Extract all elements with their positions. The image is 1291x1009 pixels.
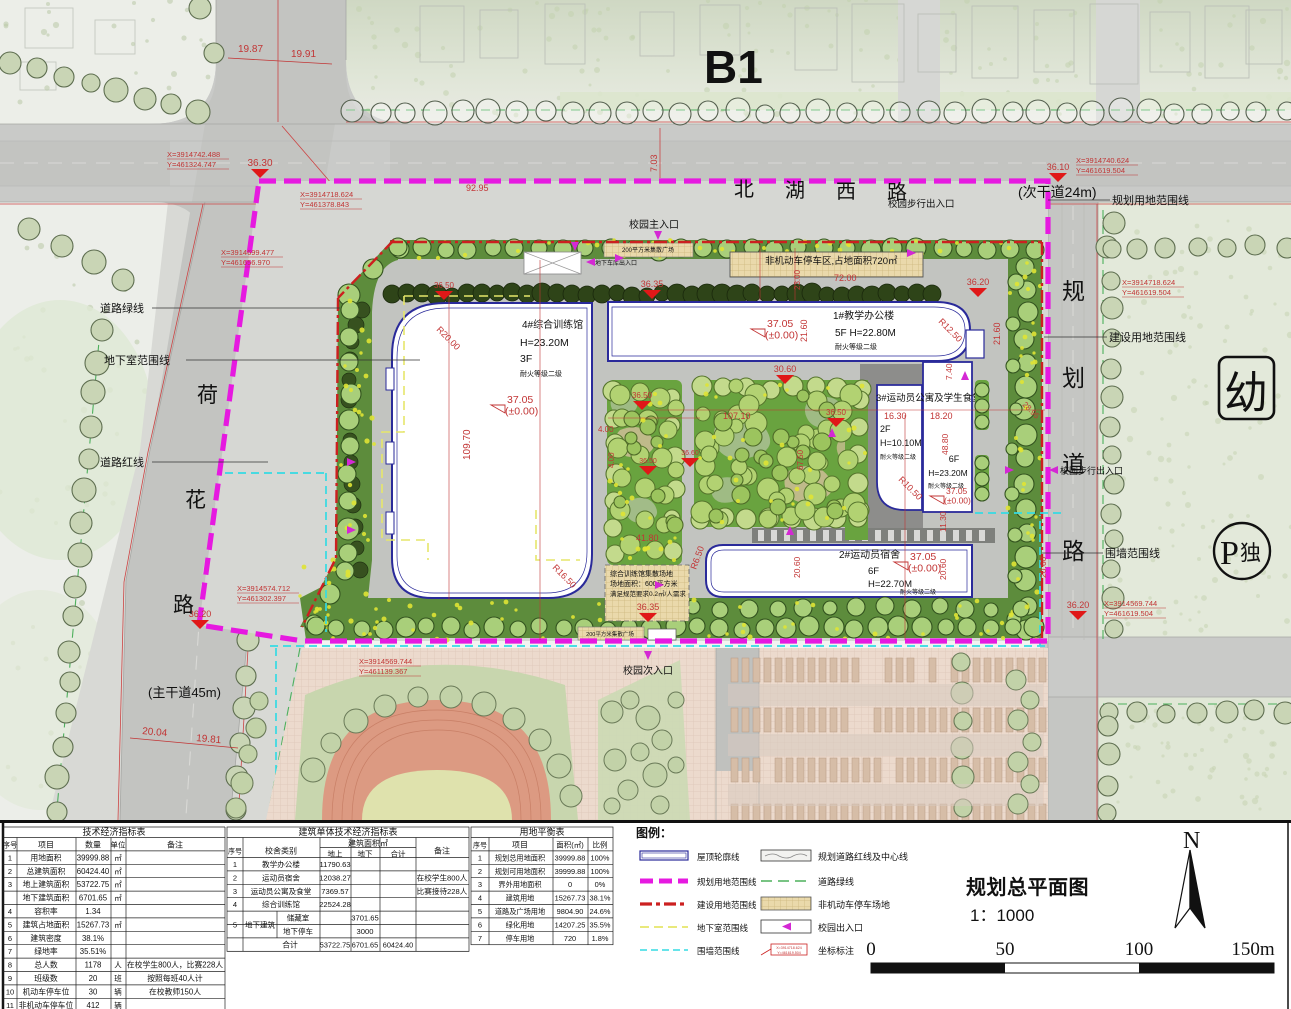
svg-text:X=3914699.477: X=3914699.477 <box>221 248 274 257</box>
svg-text:100%: 100% <box>591 853 610 862</box>
svg-text:92.95: 92.95 <box>466 183 489 193</box>
svg-text:规划总平面图: 规划总平面图 <box>966 875 1089 899</box>
svg-text:校园次入口: 校园次入口 <box>623 664 673 677</box>
svg-text:1.8%: 1.8% <box>592 934 609 943</box>
svg-text:3F: 3F <box>520 353 532 365</box>
svg-text:1.34: 1.34 <box>85 907 101 916</box>
svg-text:36.30: 36.30 <box>247 158 272 169</box>
svg-text:6701.65: 6701.65 <box>352 940 378 949</box>
svg-text:3: 3 <box>478 880 482 889</box>
svg-text:校园出入口: 校园出入口 <box>818 922 863 933</box>
svg-text:3000: 3000 <box>357 927 374 936</box>
svg-text:39999.88: 39999.88 <box>77 853 110 862</box>
svg-text:20.60: 20.60 <box>792 556 802 578</box>
svg-text:地下建筑面积: 地下建筑面积 <box>23 893 70 903</box>
svg-text:X=3914742.488: X=3914742.488 <box>167 150 220 159</box>
svg-text:储藏室: 储藏室 <box>287 913 310 923</box>
svg-text:道路红线: 道路红线 <box>100 455 144 469</box>
svg-text:序号: 序号 <box>473 841 487 850</box>
svg-text:(次干道24m): (次干道24m) <box>1018 184 1097 200</box>
svg-text:2#运动员宿舍: 2#运动员宿舍 <box>839 548 900 561</box>
svg-text:5: 5 <box>478 907 482 916</box>
svg-text:22524.28: 22524.28 <box>319 900 351 909</box>
svg-text:19.91: 19.91 <box>291 49 316 60</box>
svg-text:36.50: 36.50 <box>826 408 847 417</box>
svg-text:Y=461378.843: Y=461378.843 <box>300 200 349 209</box>
svg-text:路: 路 <box>173 594 194 617</box>
svg-text:路: 路 <box>1062 538 1085 564</box>
svg-text:耐火等级二级: 耐火等级二级 <box>835 342 877 351</box>
svg-text:4#综合训练馆: 4#综合训练馆 <box>522 318 583 331</box>
svg-text:北: 北 <box>734 178 754 201</box>
svg-text:35.51%: 35.51% <box>80 947 107 956</box>
svg-text:4.00: 4.00 <box>607 452 616 468</box>
svg-text:道路及广场用地: 道路及广场用地 <box>495 907 545 916</box>
svg-text:机动车停车位: 机动车停车位 <box>23 986 70 996</box>
svg-text:B1: B1 <box>704 41 763 93</box>
svg-text:建设用地范围线: 建设用地范围线 <box>1109 330 1186 344</box>
svg-text:比赛接待228人: 比赛接待228人 <box>417 886 468 896</box>
svg-text:11.30: 11.30 <box>938 511 948 532</box>
svg-text:校园步行出入口: 校园步行出入口 <box>1060 465 1123 476</box>
svg-text:16.30: 16.30 <box>884 411 907 421</box>
svg-text:规划用地范围线: 规划用地范围线 <box>697 877 757 887</box>
svg-text:109.70: 109.70 <box>462 429 473 460</box>
svg-text:50: 50 <box>996 939 1015 960</box>
svg-text:67.50: 67.50 <box>796 449 805 470</box>
svg-text:0: 0 <box>866 939 876 960</box>
svg-text:37.05: 37.05 <box>946 486 968 496</box>
svg-text:53722.75: 53722.75 <box>77 880 110 889</box>
svg-text:项目: 项目 <box>38 841 54 850</box>
svg-text:100: 100 <box>1125 939 1154 960</box>
svg-text:7369.57: 7369.57 <box>321 887 348 896</box>
svg-text:按照每班40人计: 按照每班40人计 <box>147 973 203 983</box>
svg-text:107.10: 107.10 <box>723 411 751 421</box>
svg-text:36.60: 36.60 <box>681 450 699 457</box>
svg-text:2F: 2F <box>880 424 891 434</box>
svg-text:建筑密度: 建筑密度 <box>30 933 61 943</box>
svg-text:序号: 序号 <box>3 840 18 850</box>
svg-text:绿地率: 绿地率 <box>34 946 58 956</box>
svg-text:18.20: 18.20 <box>930 411 953 421</box>
svg-text:N: N <box>1183 828 1200 854</box>
svg-text:11: 11 <box>6 1001 14 1009</box>
svg-text:耐火等级二级: 耐火等级二级 <box>880 453 916 461</box>
svg-text:6: 6 <box>8 934 12 943</box>
svg-text:道路绿线: 道路绿线 <box>818 876 854 887</box>
svg-text:1#教学办公楼: 1#教学办公楼 <box>833 309 894 322</box>
svg-text:(主干道45m): (主干道45m) <box>148 685 221 700</box>
svg-text:1: 1 <box>233 860 237 869</box>
svg-text:36.35: 36.35 <box>637 602 660 612</box>
svg-text:地下建筑: 地下建筑 <box>245 920 275 930</box>
svg-text:19.87: 19.87 <box>238 44 263 55</box>
svg-text:36.20: 36.20 <box>1067 600 1090 610</box>
svg-text:独: 独 <box>1240 542 1261 565</box>
svg-text:备注: 备注 <box>434 846 450 856</box>
svg-text:100%: 100% <box>591 867 610 876</box>
svg-text:36.20: 36.20 <box>967 277 990 287</box>
svg-text:15267.73: 15267.73 <box>555 894 586 903</box>
svg-text:H=10.10M: H=10.10M <box>880 438 922 448</box>
svg-text:Y=461619.504: Y=461619.504 <box>1076 166 1125 175</box>
svg-text:地下室范围线: 地下室范围线 <box>697 923 749 933</box>
svg-text:规: 规 <box>1062 278 1085 304</box>
svg-text:规划可用地面积: 规划可用地面积 <box>495 867 545 876</box>
svg-text:合计: 合计 <box>391 849 406 859</box>
svg-text:耐火等级二级: 耐火等级二级 <box>520 369 562 378</box>
svg-text:2: 2 <box>478 867 482 876</box>
svg-text:35.5%: 35.5% <box>590 920 611 929</box>
svg-text:3: 3 <box>233 887 237 896</box>
svg-text:3: 3 <box>8 880 12 889</box>
svg-text:30: 30 <box>89 987 98 996</box>
svg-text:湖: 湖 <box>785 179 805 202</box>
svg-text:场地面积：600平方米: 场地面积：600平方米 <box>610 579 678 588</box>
svg-text:1: 1 <box>8 853 12 862</box>
svg-text:X=3914569.744: X=3914569.744 <box>1104 599 1157 608</box>
svg-text:㎡: ㎡ <box>114 880 122 889</box>
svg-text:划: 划 <box>1062 365 1085 391</box>
svg-text:21.60: 21.60 <box>799 319 809 342</box>
svg-text:(±0.00): (±0.00) <box>505 406 538 418</box>
svg-text:Y=461139.367: Y=461139.367 <box>359 667 407 676</box>
svg-text:图例：: 图例： <box>636 825 672 840</box>
svg-text:36.10: 36.10 <box>1047 162 1070 172</box>
svg-text:满足规范要求0.2㎡/人需求: 满足规范要求0.2㎡/人需求 <box>610 589 686 598</box>
svg-text:X=3914718.624: X=3914718.624 <box>776 946 801 950</box>
svg-text:60424.40: 60424.40 <box>383 940 413 949</box>
svg-text:14207.25: 14207.25 <box>555 920 586 929</box>
svg-text:面积(㎡): 面积(㎡) <box>556 840 584 850</box>
svg-text:7: 7 <box>8 947 12 956</box>
svg-text:Y=461619.504: Y=461619.504 <box>1122 288 1171 297</box>
svg-text:建设用地范围线: 建设用地范围线 <box>697 900 757 910</box>
svg-text:技术经济指标表: 技术经济指标表 <box>82 826 145 837</box>
svg-text:8: 8 <box>8 961 12 970</box>
svg-text:地下: 地下 <box>358 849 373 859</box>
svg-text:合计: 合计 <box>282 939 298 949</box>
svg-text:60424.40: 60424.40 <box>77 867 110 876</box>
svg-text:数量: 数量 <box>85 840 101 850</box>
svg-text:20: 20 <box>89 974 98 983</box>
svg-text:规划总用地面积: 规划总用地面积 <box>495 853 545 862</box>
svg-text:36.50: 36.50 <box>632 391 653 400</box>
svg-text:21.60: 21.60 <box>992 322 1002 345</box>
svg-text:10: 10 <box>6 987 14 996</box>
svg-text:3701.65: 3701.65 <box>351 914 378 923</box>
svg-text:(±0.00): (±0.00) <box>908 563 941 575</box>
svg-text:38.1%: 38.1% <box>590 894 611 903</box>
svg-text:X=3914718.624: X=3914718.624 <box>300 190 353 199</box>
svg-text:班级数: 班级数 <box>34 973 58 983</box>
svg-text:37.05: 37.05 <box>767 318 793 330</box>
svg-text:200平方米集散广场: 200平方米集散广场 <box>586 630 634 638</box>
svg-text:坐标标注: 坐标标注 <box>818 945 854 956</box>
svg-text:道路绿线: 道路绿线 <box>100 301 144 315</box>
svg-text:围墙范围线: 围墙范围线 <box>1105 546 1160 560</box>
svg-text:5: 5 <box>8 920 12 929</box>
svg-text:412: 412 <box>86 1001 99 1009</box>
svg-text:24.6%: 24.6% <box>590 907 611 916</box>
svg-text:6: 6 <box>478 920 482 929</box>
svg-text:非机动车停车场地: 非机动车停车场地 <box>818 899 890 910</box>
svg-text:72.00: 72.00 <box>834 273 857 283</box>
svg-text:2: 2 <box>8 867 12 876</box>
svg-text:3#运动员公寓及学生食堂: 3#运动员公寓及学生食堂 <box>876 392 982 404</box>
svg-text:花: 花 <box>185 489 206 512</box>
svg-text:非机动车停车区,占地面积720㎡: 非机动车停车区,占地面积720㎡ <box>765 255 898 267</box>
svg-text:Y=461324.747: Y=461324.747 <box>167 160 216 169</box>
svg-text:30.60: 30.60 <box>774 364 797 374</box>
svg-text:20.60: 20.60 <box>938 558 948 580</box>
svg-text:36.35: 36.35 <box>641 279 664 289</box>
svg-text:规划用地范围线: 规划用地范围线 <box>1112 193 1189 207</box>
svg-text:㎡: ㎡ <box>114 853 122 862</box>
svg-text:(±0.00): (±0.00) <box>944 496 971 506</box>
svg-text:运动员公寓及食堂: 运动员公寓及食堂 <box>251 886 312 896</box>
svg-text:5: 5 <box>233 921 237 930</box>
svg-text:界外用地面积: 界外用地面积 <box>498 880 541 889</box>
svg-text:辆: 辆 <box>114 986 122 996</box>
svg-text:建筑面积㎡: 建筑面积㎡ <box>348 838 388 848</box>
svg-text:36.50: 36.50 <box>434 281 455 290</box>
svg-text:(±0.00): (±0.00) <box>765 330 798 342</box>
svg-text:39999.88: 39999.88 <box>555 853 586 862</box>
svg-text:人: 人 <box>114 961 122 970</box>
svg-text:150m: 150m <box>1231 939 1275 960</box>
svg-text:5F H=22.80M: 5F H=22.80M <box>835 328 896 339</box>
svg-text:1178: 1178 <box>85 961 102 970</box>
svg-text:屋顶轮廓线: 屋顶轮廓线 <box>697 852 740 862</box>
svg-text:0: 0 <box>568 880 572 889</box>
svg-text:Y=461619.504: Y=461619.504 <box>1104 609 1153 618</box>
svg-text:容积率: 容积率 <box>34 906 58 916</box>
svg-text:20.60: 20.60 <box>1038 556 1048 578</box>
svg-text:37.05: 37.05 <box>507 394 533 406</box>
svg-text:绿化用地: 绿化用地 <box>506 920 535 929</box>
svg-text:53722.75: 53722.75 <box>320 940 350 949</box>
svg-text:6F: 6F <box>949 454 960 464</box>
svg-text:建筑用地: 建筑用地 <box>506 894 535 903</box>
svg-text:41.80: 41.80 <box>636 533 659 543</box>
svg-text:综合训练馆集散场地: 综合训练馆集散场地 <box>610 569 673 578</box>
svg-text:综合训练馆: 综合训练馆 <box>262 899 300 909</box>
svg-text:西: 西 <box>836 181 856 203</box>
svg-text:H=23.20M: H=23.20M <box>520 337 569 349</box>
svg-text:36.50: 36.50 <box>639 458 657 465</box>
svg-text:运动员宿舍: 运动员宿舍 <box>262 872 300 882</box>
svg-text:2: 2 <box>233 873 237 882</box>
svg-text:6F: 6F <box>868 566 879 577</box>
svg-text:39999.88: 39999.88 <box>555 867 586 876</box>
svg-text:幼: 幼 <box>1224 369 1268 418</box>
svg-text:在校学生800人: 在校学生800人 <box>417 872 468 882</box>
svg-text:建筑单体技术经济指标表: 建筑单体技术经济指标表 <box>298 826 397 837</box>
svg-text:㎡: ㎡ <box>114 867 122 876</box>
svg-text:总建筑面积: 总建筑面积 <box>27 866 66 876</box>
svg-text:建筑占地面积: 建筑占地面积 <box>23 919 70 929</box>
svg-text:0%: 0% <box>595 880 606 889</box>
svg-text:地下停车: 地下停车 <box>283 926 313 936</box>
svg-text:23.00: 23.00 <box>793 269 802 290</box>
svg-text:X=3914574.712: X=3914574.712 <box>237 584 290 593</box>
svg-text:地上: 地上 <box>328 849 343 859</box>
svg-text:非机动车停车位: 非机动车停车位 <box>19 1000 74 1009</box>
svg-text:38.1%: 38.1% <box>82 934 104 943</box>
svg-text:校园主入口: 校园主入口 <box>629 218 679 231</box>
svg-text:用地面积: 用地面积 <box>30 852 61 862</box>
svg-text:班: 班 <box>114 973 122 983</box>
svg-text:项目: 项目 <box>512 841 528 850</box>
svg-text:单位: 单位 <box>111 840 126 850</box>
svg-text:规划道路红线及中心线: 规划道路红线及中心线 <box>818 851 908 862</box>
svg-text:辆: 辆 <box>114 1000 122 1009</box>
svg-text:备注: 备注 <box>167 840 183 850</box>
svg-text:4: 4 <box>478 894 482 903</box>
svg-text:7: 7 <box>478 934 482 943</box>
svg-text:在校教师150人: 在校教师150人 <box>149 986 201 996</box>
svg-text:X=3914569.744: X=3914569.744 <box>359 657 412 666</box>
svg-text:1: 1 <box>478 853 482 862</box>
svg-text:37.05: 37.05 <box>910 551 936 563</box>
svg-text:围墙范围线: 围墙范围线 <box>697 946 740 956</box>
svg-text:7.03: 7.03 <box>649 154 659 172</box>
svg-text:㎡: ㎡ <box>114 894 122 903</box>
svg-text:荷: 荷 <box>197 384 218 407</box>
svg-text:总人数: 总人数 <box>34 960 58 970</box>
svg-text:X=3914718.624: X=3914718.624 <box>1122 278 1175 287</box>
svg-text:H=22.70M: H=22.70M <box>868 579 912 590</box>
svg-text:P: P <box>1220 535 1239 572</box>
svg-text:H=23.20M: H=23.20M <box>928 468 967 478</box>
svg-text:用地平衡表: 用地平衡表 <box>519 826 564 837</box>
svg-text:20.04: 20.04 <box>142 726 168 739</box>
svg-text:地下室范围线: 地下室范围线 <box>104 353 170 367</box>
svg-text:教学办公楼: 教学办公楼 <box>262 859 300 869</box>
svg-text:耐火等级二级: 耐火等级二级 <box>900 588 936 596</box>
svg-text:校园步行出入口: 校园步行出入口 <box>888 198 955 210</box>
svg-text:序号: 序号 <box>228 847 242 856</box>
svg-text:12038.27: 12038.27 <box>319 873 351 882</box>
svg-text:4: 4 <box>233 900 237 909</box>
svg-text:9804.90: 9804.90 <box>557 907 584 916</box>
svg-text:地上建筑面积: 地上建筑面积 <box>23 879 70 889</box>
svg-text:X=3914740.624: X=3914740.624 <box>1076 156 1129 165</box>
svg-text:Y=461302.397: Y=461302.397 <box>237 594 286 603</box>
svg-text:1：1000: 1：1000 <box>970 906 1034 925</box>
svg-text:200平方米集散广场: 200平方米集散广场 <box>622 246 674 254</box>
svg-text:11790.63: 11790.63 <box>319 860 350 869</box>
svg-text:比例: 比例 <box>593 840 608 850</box>
svg-text:Y=461619.504: Y=461619.504 <box>777 951 800 955</box>
svg-text:7.40: 7.40 <box>944 363 954 380</box>
svg-text:校舍类别: 校舍类别 <box>265 846 297 856</box>
svg-text:4.00: 4.00 <box>598 425 614 434</box>
svg-text:720: 720 <box>564 934 576 943</box>
svg-text:9: 9 <box>8 974 12 983</box>
svg-text:15267.73: 15267.73 <box>77 920 110 929</box>
svg-text:6701.65: 6701.65 <box>79 894 108 903</box>
svg-text:㎡: ㎡ <box>114 920 122 929</box>
svg-text:在校学生800人，比赛228人: 在校学生800人，比赛228人 <box>127 960 223 970</box>
svg-text:Y=461656.970: Y=461656.970 <box>221 258 270 267</box>
svg-text:4: 4 <box>8 907 12 916</box>
svg-text:48.80: 48.80 <box>940 433 950 455</box>
svg-text:停车用地: 停车用地 <box>506 934 535 943</box>
